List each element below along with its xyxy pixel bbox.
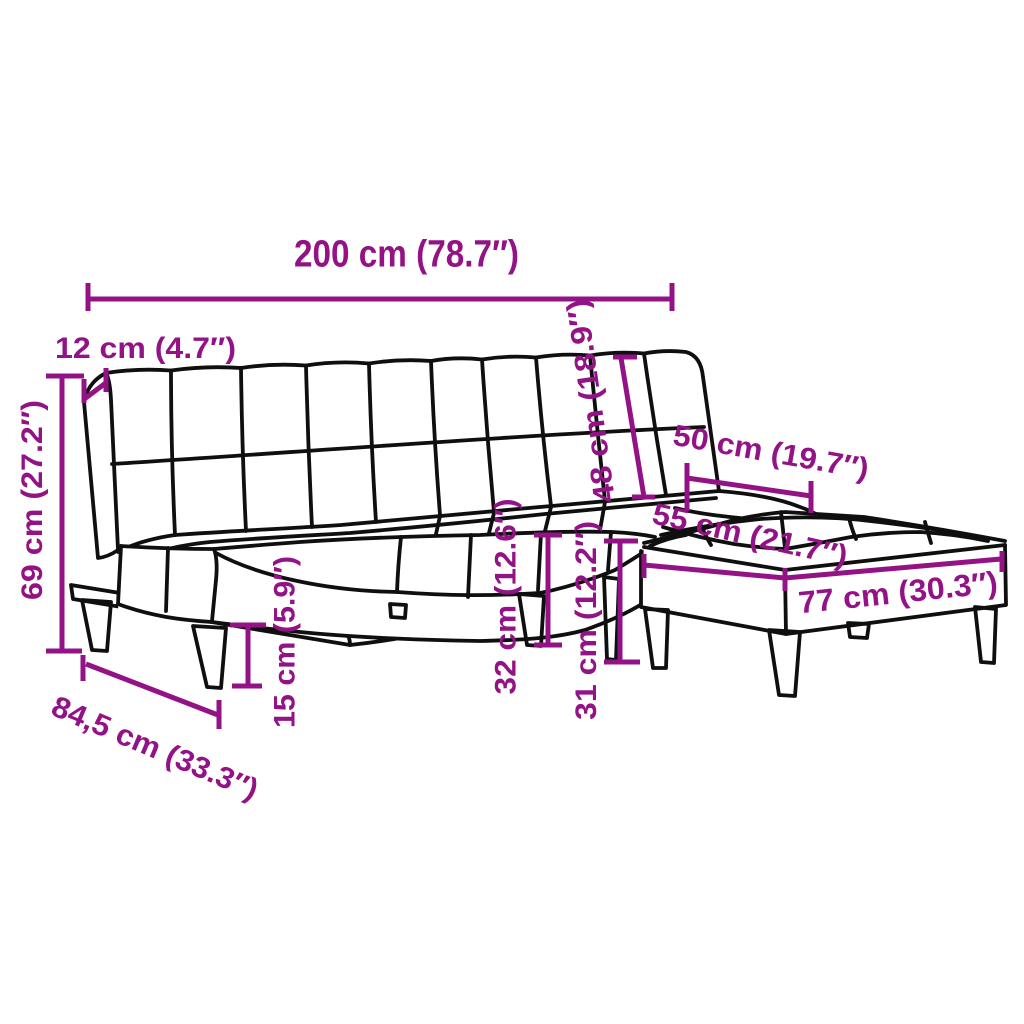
svg-text:69 cm (27.2″): 69 cm (27.2″) (16, 400, 49, 600)
svg-text:15 cm (5.9″): 15 cm (5.9″) (269, 556, 302, 728)
svg-text:32 cm (12.6″): 32 cm (12.6″) (490, 499, 523, 695)
svg-text:200 cm (78.7″): 200 cm (78.7″) (294, 234, 519, 276)
svg-text:12 cm (4.7″): 12 cm (4.7″) (55, 332, 236, 365)
svg-text:31 cm (12.2″): 31 cm (12.2″) (570, 521, 603, 720)
